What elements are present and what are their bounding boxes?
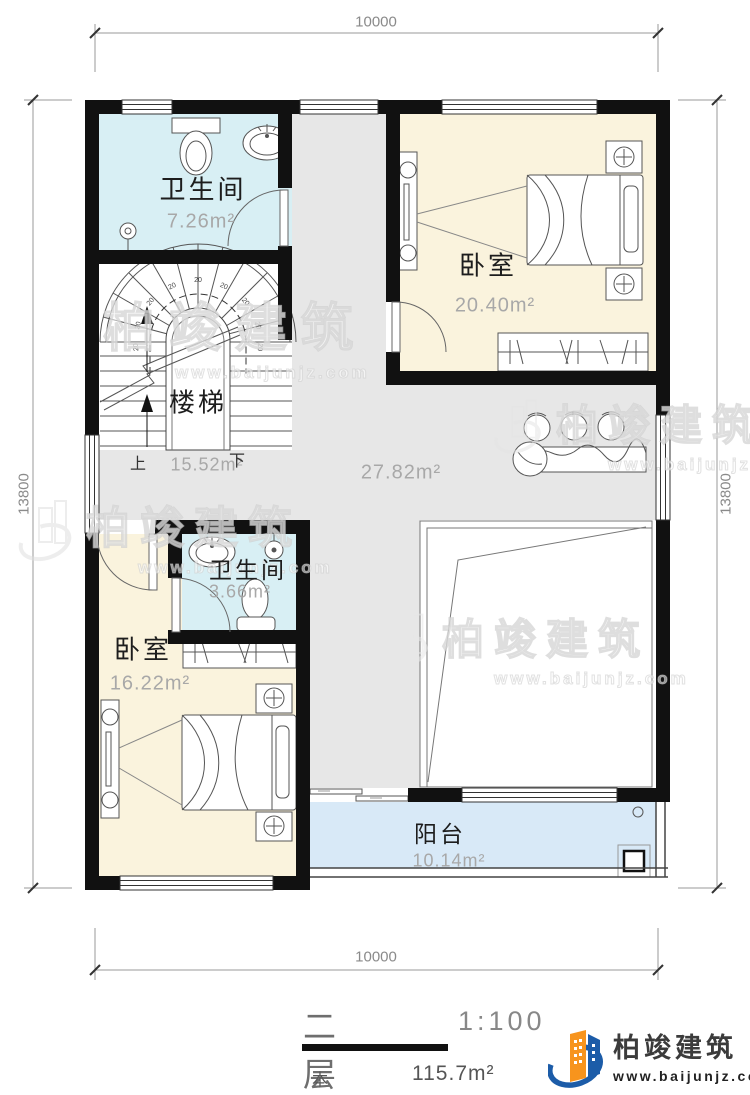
balcony-sliding-door (310, 789, 408, 801)
window (120, 876, 273, 890)
room-label-stairs: 楼梯 (169, 383, 227, 420)
nightstand (256, 812, 292, 841)
stairs-up-label: 上 (130, 450, 146, 474)
bed (527, 175, 643, 265)
void-opening (420, 521, 652, 787)
closet (498, 333, 648, 371)
floor-area-label: 本层建筑面积: (312, 1066, 332, 1095)
window (300, 100, 378, 114)
svg-text:20: 20 (133, 343, 141, 351)
floor-area-value: 115.7m² (412, 1062, 494, 1086)
room-label-bedroom2: 卧室 (114, 630, 172, 667)
dimension-top: 10000 (355, 14, 397, 31)
bed (182, 715, 296, 810)
room-area-bath1: 7.26m² (167, 211, 235, 234)
nightstand (606, 268, 642, 300)
room-label-balcony: 阳台 (414, 815, 466, 849)
svg-text:20: 20 (194, 277, 202, 284)
window (442, 100, 597, 114)
dimension-right: 13800 (718, 473, 735, 515)
dimension-bottom: 10000 (355, 949, 397, 966)
brand-logo: 柏竣建筑 www.baijunjz.com (548, 1026, 750, 1088)
nightstand (606, 141, 642, 173)
title-underline (302, 1044, 448, 1051)
floorplan-page: 20 20 20 20 20 20 20 20 20 (0, 0, 750, 1095)
room-area-bedroom1: 20.40m² (455, 295, 535, 318)
dimension-left: 13800 (16, 473, 33, 515)
brand-name: 柏竣建筑 (613, 1026, 750, 1065)
window (656, 415, 670, 520)
stairs-down-label: 下 (229, 447, 245, 471)
room-area-bath2: 3.66m² (209, 582, 271, 603)
room-area-balcony: 10.14m² (412, 851, 485, 872)
room-area-hall: 27.82m² (361, 462, 441, 485)
window (85, 435, 99, 533)
drawing-scale: 1:100 (458, 1006, 546, 1037)
nightstand (256, 684, 292, 713)
room-label-bedroom1: 卧室 (459, 246, 517, 283)
brand-logo-icon (548, 1026, 608, 1088)
room-area-bedroom2: 16.22m² (110, 673, 190, 696)
svg-text:20: 20 (256, 343, 264, 351)
window (122, 100, 172, 114)
room-label-bath2: 卫生间 (209, 551, 287, 585)
window (462, 788, 617, 802)
brand-website: www.baijunjz.com (613, 1068, 750, 1084)
room-label-bath1: 卫生间 (159, 170, 246, 207)
floor-plan-drawing: 20 20 20 20 20 20 20 20 20 (0, 0, 750, 1095)
